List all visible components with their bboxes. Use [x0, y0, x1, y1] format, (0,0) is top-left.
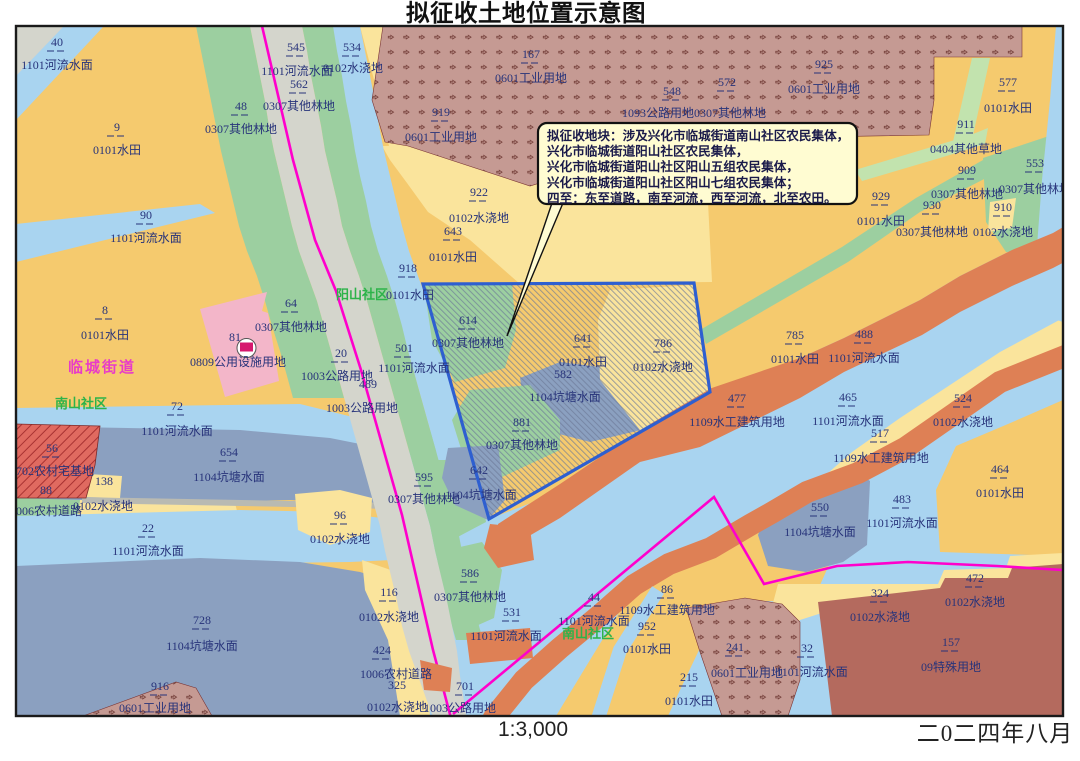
svg-text:1104坑塘水面: 1104坑塘水面 [166, 638, 238, 653]
svg-text:241: 241 [726, 640, 744, 654]
svg-text:0601工业用地: 0601工业用地 [119, 701, 191, 715]
svg-text:0101水田: 0101水田 [665, 694, 713, 708]
svg-text:56: 56 [46, 441, 58, 455]
svg-text:586: 586 [461, 566, 479, 580]
svg-text:拟征收土地位置示意图: 拟征收土地位置示意图 [406, 0, 646, 27]
svg-text:548: 548 [663, 84, 681, 98]
svg-text:0601工业用地: 0601工业用地 [788, 82, 860, 96]
svg-text:兴化市临城街道阳山社区农民集体，: 兴化市临城街道阳山社区农民集体， [547, 144, 749, 159]
svg-text:909: 909 [958, 163, 976, 177]
svg-text:1101河流水面: 1101河流水面 [866, 516, 938, 530]
svg-text:1109水工建筑用地: 1109水工建筑用地 [689, 414, 785, 429]
svg-text:20: 20 [335, 346, 347, 360]
svg-text:1101河流水面: 1101河流水面 [828, 351, 900, 365]
svg-text:881: 881 [513, 415, 531, 429]
svg-text:兴化市临城街道阳山社区阳山七组农民集体；: 兴化市临城街道阳山社区阳山七组农民集体； [547, 175, 799, 191]
svg-text:911: 911 [957, 117, 975, 131]
svg-text:918: 918 [399, 261, 417, 275]
svg-text:477: 477 [728, 391, 746, 405]
svg-text:157: 157 [942, 635, 960, 649]
svg-text:0102水浇地: 0102水浇地 [933, 415, 993, 429]
svg-text:545: 545 [287, 40, 305, 54]
svg-text:489: 489 [359, 377, 377, 391]
svg-text:1101河流水面: 1101河流水面 [776, 665, 848, 679]
svg-text:785: 785 [786, 328, 804, 342]
svg-text:0102水浇地: 0102水浇地 [310, 532, 370, 546]
svg-text:64: 64 [285, 296, 297, 310]
svg-text:488: 488 [855, 327, 873, 341]
svg-text:1101河流水面: 1101河流水面 [378, 361, 450, 375]
svg-text:0601工业用地: 0601工业用地 [495, 71, 567, 85]
svg-text:116: 116 [380, 585, 398, 599]
svg-text:0102水浇地: 0102水浇地 [633, 360, 693, 374]
svg-text:8: 8 [102, 303, 108, 317]
svg-text:0809公用设施用地: 0809公用设施用地 [190, 355, 286, 369]
svg-text:81: 81 [229, 330, 241, 344]
svg-text:929: 929 [872, 189, 890, 203]
svg-text:641: 641 [574, 331, 592, 345]
svg-text:534: 534 [343, 40, 361, 54]
svg-text:517: 517 [871, 426, 889, 440]
svg-text:0307其他林地: 0307其他林地 [999, 182, 1071, 196]
svg-text:1101河流水面: 1101河流水面 [470, 629, 542, 643]
svg-text:1101河流水面: 1101河流水面 [141, 424, 213, 438]
svg-text:40: 40 [51, 35, 63, 49]
svg-text:654: 654 [220, 445, 238, 459]
svg-text:0102水浇地: 0102水浇地 [945, 595, 1005, 609]
svg-text:324: 324 [871, 586, 889, 600]
svg-text:1003公路用地: 1003公路用地 [326, 400, 398, 415]
svg-text:拟征收地块：涉及兴化市临城街道南山社区农民集体，: 拟征收地块：涉及兴化市临城街道南山社区农民集体， [547, 128, 849, 143]
svg-text:531: 531 [503, 605, 521, 619]
svg-text:09特殊用地: 09特殊用地 [921, 659, 981, 674]
svg-text:96: 96 [334, 508, 346, 522]
svg-text:0702农村宅基地: 0702农村宅基地 [10, 463, 94, 478]
svg-text:562: 562 [290, 77, 308, 91]
svg-text:1:3,000: 1:3,000 [498, 718, 568, 741]
svg-text:44: 44 [588, 590, 600, 604]
svg-text:910: 910 [994, 200, 1012, 214]
svg-text:二0二四年八月: 二0二四年八月 [917, 721, 1074, 746]
svg-text:701: 701 [456, 679, 474, 693]
svg-text:兴化市临城街道阳山社区阳山五组农民集体，: 兴化市临城街道阳山社区阳山五组农民集体， [547, 159, 799, 174]
svg-text:0307其他林地: 0307其他林地 [896, 225, 968, 239]
svg-text:南山社区: 南山社区 [562, 626, 614, 641]
svg-text:0101水田: 0101水田 [984, 101, 1032, 115]
svg-text:577: 577 [999, 75, 1017, 89]
svg-text:0307其他林地: 0307其他林地 [255, 320, 327, 334]
svg-text:424: 424 [373, 643, 391, 657]
svg-text:0101水田: 0101水田 [429, 250, 477, 264]
svg-text:阳山社区: 阳山社区 [336, 287, 388, 302]
svg-text:1104坑塘水面: 1104坑塘水面 [784, 524, 856, 539]
svg-text:0102水浇地: 0102水浇地 [850, 610, 910, 624]
svg-text:1003公路用地: 1003公路用地 [424, 700, 496, 715]
svg-text:0307其他林地: 0307其他林地 [486, 438, 558, 452]
svg-text:1104坑塘水面: 1104坑塘水面 [193, 469, 265, 484]
svg-text:1109水工建筑用地: 1109水工建筑用地 [833, 450, 929, 465]
svg-text:0307其他林地: 0307其他林地 [205, 122, 277, 136]
svg-text:86: 86 [661, 582, 673, 596]
svg-text:1101河流水面: 1101河流水面 [21, 58, 93, 72]
svg-text:1109水工建筑用地: 1109水工建筑用地 [619, 602, 715, 617]
svg-text:88: 88 [40, 483, 52, 497]
svg-text:72: 72 [171, 399, 183, 413]
svg-text:0101水田: 0101水田 [93, 143, 141, 157]
svg-text:90: 90 [140, 208, 152, 222]
svg-text:0102水浇地: 0102水浇地 [359, 610, 419, 624]
svg-text:215: 215 [680, 670, 698, 684]
svg-text:922: 922 [470, 185, 488, 199]
svg-text:501: 501 [395, 341, 413, 355]
svg-text:0101水田: 0101水田 [976, 486, 1024, 500]
svg-text:483: 483 [893, 492, 911, 506]
svg-text:1093公路用地0307其他林地: 1093公路用地0307其他林地 [622, 105, 766, 120]
svg-text:553: 553 [1026, 156, 1044, 170]
svg-text:0102水浇地: 0102水浇地 [449, 211, 509, 225]
svg-text:0601工业用地: 0601工业用地 [405, 130, 477, 144]
svg-text:0404其他草地: 0404其他草地 [930, 142, 1002, 156]
svg-text:952: 952 [638, 619, 656, 633]
svg-text:0101水田: 0101水田 [771, 352, 819, 366]
svg-text:0307其他林地: 0307其他林地 [263, 99, 335, 113]
svg-text:0307其他林地: 0307其他林地 [432, 336, 504, 350]
svg-text:48: 48 [235, 99, 247, 113]
svg-text:0307其他林地: 0307其他林地 [434, 590, 506, 604]
svg-text:930: 930 [923, 198, 941, 212]
svg-text:919: 919 [432, 105, 450, 119]
svg-text:临城街道: 临城街道 [68, 358, 136, 376]
svg-text:642: 642 [470, 463, 488, 477]
svg-text:1101河流水面: 1101河流水面 [112, 544, 184, 558]
svg-text:464: 464 [991, 462, 1009, 476]
svg-text:1104坑塘水面: 1104坑塘水面 [445, 487, 517, 502]
svg-text:0102水浇地: 0102水浇地 [973, 225, 1033, 239]
svg-text:1006农村道路: 1006农村道路 [10, 503, 82, 518]
svg-text:0101水田: 0101水田 [623, 642, 671, 656]
svg-text:465: 465 [839, 390, 857, 404]
svg-text:9: 9 [114, 120, 120, 134]
svg-text:572: 572 [718, 75, 736, 89]
svg-text:0101水田: 0101水田 [386, 288, 434, 302]
svg-text:786: 786 [654, 336, 672, 350]
svg-text:1101河流水面: 1101河流水面 [110, 231, 182, 245]
svg-text:167: 167 [522, 47, 540, 61]
svg-text:550: 550 [811, 500, 829, 514]
svg-text:728: 728 [193, 613, 211, 627]
svg-text:472: 472 [966, 571, 984, 585]
svg-text:0102水浇地: 0102水浇地 [323, 61, 383, 75]
svg-text:614: 614 [459, 313, 477, 327]
svg-text:595: 595 [415, 470, 433, 484]
svg-text:32: 32 [801, 641, 813, 655]
svg-text:138: 138 [95, 474, 113, 488]
svg-text:643: 643 [444, 224, 462, 238]
svg-text:四至：东至道路，南至河流，西至河流，北至农田。: 四至：东至道路，南至河流，西至河流，北至农田。 [547, 190, 837, 205]
svg-text:0307其他林地: 0307其他林地 [931, 187, 1003, 201]
svg-text:0102水浇地: 0102水浇地 [367, 700, 427, 714]
svg-text:925: 925 [815, 57, 833, 71]
svg-text:1104坑塘水面: 1104坑塘水面 [529, 389, 601, 404]
svg-text:325: 325 [388, 678, 406, 692]
svg-text:南山社区: 南山社区 [55, 396, 107, 411]
svg-text:0101水田: 0101水田 [81, 328, 129, 342]
svg-text:22: 22 [142, 521, 154, 535]
svg-text:524: 524 [954, 391, 972, 405]
svg-text:916: 916 [151, 679, 169, 693]
svg-text:0601工业用地: 0601工业用地 [711, 666, 783, 680]
svg-text:582: 582 [554, 367, 572, 381]
